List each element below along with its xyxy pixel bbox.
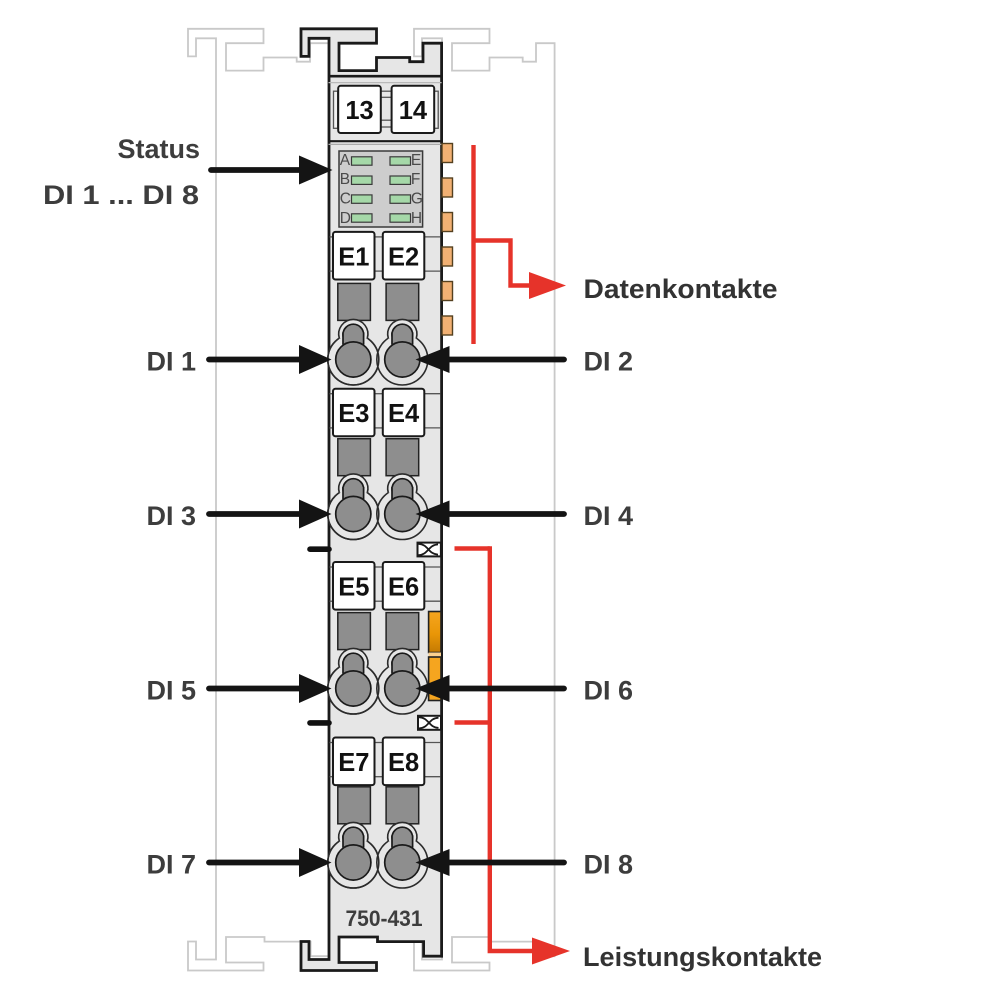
svg-text:E8: E8 — [388, 749, 419, 777]
svg-text:E: E — [411, 152, 421, 169]
svg-text:E2: E2 — [388, 243, 419, 271]
svg-text:F: F — [411, 171, 420, 188]
svg-text:E6: E6 — [388, 573, 419, 601]
svg-text:E1: E1 — [338, 243, 369, 271]
svg-text:E7: E7 — [338, 749, 369, 777]
svg-text:750-431: 750-431 — [346, 906, 423, 931]
svg-text:Leistungskontakte: Leistungskontakte — [583, 942, 822, 972]
svg-text:A: A — [340, 152, 351, 169]
svg-text:DI 3: DI 3 — [146, 501, 196, 531]
svg-text:Status: Status — [117, 134, 200, 164]
svg-text:G: G — [411, 191, 423, 208]
svg-text:DI 1: DI 1 — [146, 347, 196, 377]
svg-text:B: B — [340, 171, 350, 188]
svg-text:H: H — [411, 210, 422, 227]
svg-text:DI 6: DI 6 — [584, 676, 634, 706]
svg-text:13: 13 — [345, 97, 373, 125]
svg-text:DI 4: DI 4 — [584, 501, 634, 531]
svg-text:14: 14 — [399, 97, 428, 125]
svg-text:E5: E5 — [338, 573, 369, 601]
svg-text:DI 1 ... DI 8: DI 1 ... DI 8 — [43, 180, 199, 210]
svg-text:E4: E4 — [388, 400, 420, 428]
svg-text:Datenkontakte: Datenkontakte — [584, 274, 778, 304]
svg-text:DI 2: DI 2 — [584, 347, 634, 377]
svg-text:C: C — [340, 191, 351, 208]
svg-text:DI 7: DI 7 — [146, 850, 196, 880]
svg-text:DI 5: DI 5 — [146, 676, 196, 706]
svg-text:E3: E3 — [338, 400, 369, 428]
svg-text:DI 8: DI 8 — [584, 850, 634, 880]
svg-text:D: D — [340, 210, 351, 227]
